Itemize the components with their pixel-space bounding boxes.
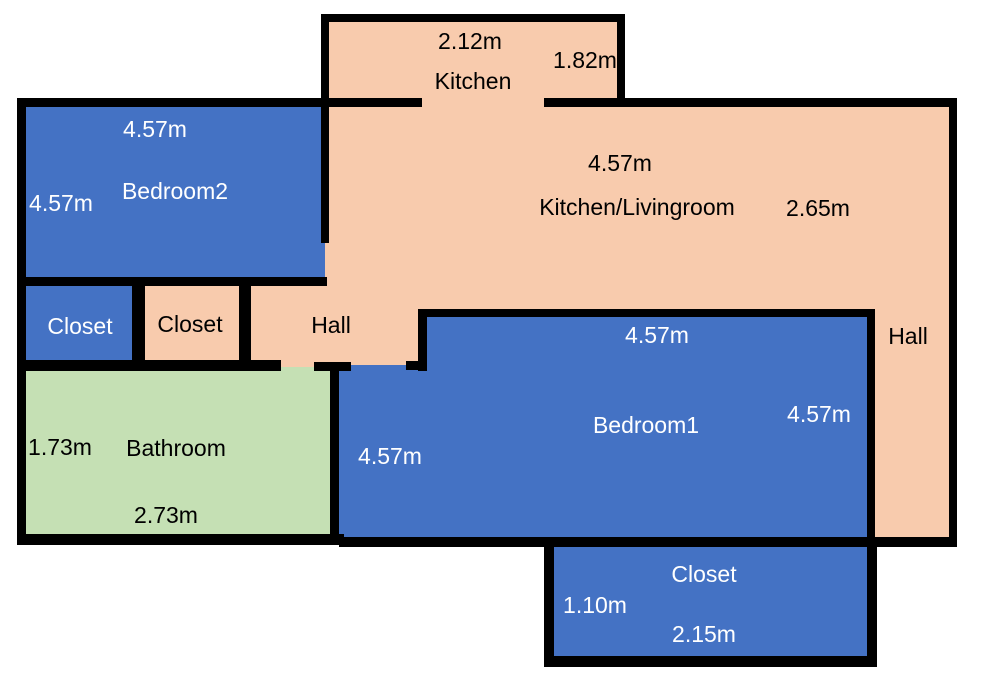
svg-text:Kitchen: Kitchen (435, 68, 512, 94)
svg-text:Closet: Closet (157, 311, 223, 337)
svg-text:1.73m: 1.73m (28, 434, 92, 460)
svg-text:4.57m: 4.57m (787, 401, 851, 427)
svg-text:Kitchen/Livingroom: Kitchen/Livingroom (539, 194, 735, 220)
svg-text:Closet: Closet (47, 313, 113, 339)
svg-text:2.73m: 2.73m (134, 502, 198, 528)
svg-text:Bedroom1: Bedroom1 (593, 412, 699, 438)
svg-text:1.82m: 1.82m (553, 47, 617, 73)
svg-text:4.57m: 4.57m (625, 322, 689, 348)
svg-text:4.57m: 4.57m (588, 150, 652, 176)
svg-text:2.65m: 2.65m (786, 195, 850, 221)
svg-text:Hall: Hall (311, 312, 351, 338)
svg-text:Bathroom: Bathroom (126, 435, 226, 461)
svg-text:Hall: Hall (888, 323, 928, 349)
svg-text:Bedroom2: Bedroom2 (122, 178, 228, 204)
svg-text:1.10m: 1.10m (563, 592, 627, 618)
svg-text:2.15m: 2.15m (672, 621, 736, 647)
svg-text:4.57m: 4.57m (358, 443, 422, 469)
svg-text:4.57m: 4.57m (123, 116, 187, 142)
svg-text:Closet: Closet (671, 561, 737, 587)
svg-text:2.12m: 2.12m (438, 28, 502, 54)
svg-text:4.57m: 4.57m (29, 190, 93, 216)
